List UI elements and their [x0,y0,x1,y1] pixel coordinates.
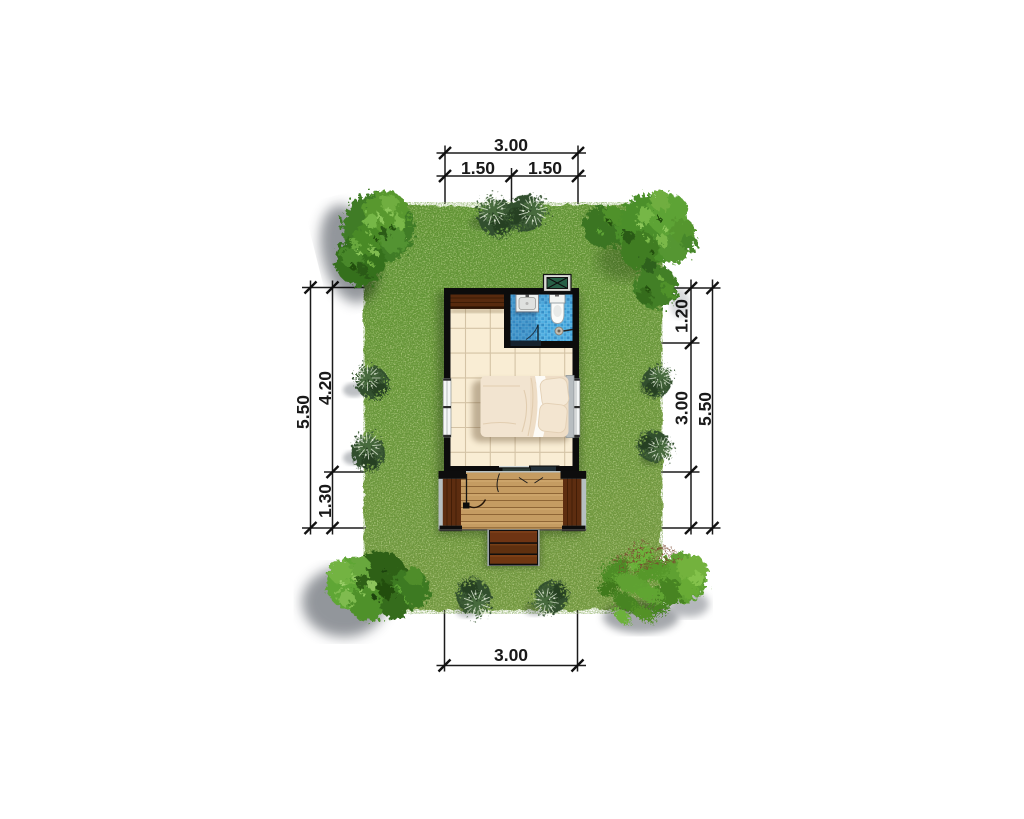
svg-text:5.50: 5.50 [293,395,313,429]
svg-text:3.00: 3.00 [494,135,528,155]
svg-text:1.50: 1.50 [528,158,562,178]
svg-text:3.00: 3.00 [494,645,528,665]
svg-text:3.00: 3.00 [672,391,692,425]
svg-text:1.50: 1.50 [461,158,495,178]
svg-text:1.30: 1.30 [315,484,335,518]
svg-text:5.50: 5.50 [695,392,715,426]
svg-text:4.20: 4.20 [315,371,335,405]
